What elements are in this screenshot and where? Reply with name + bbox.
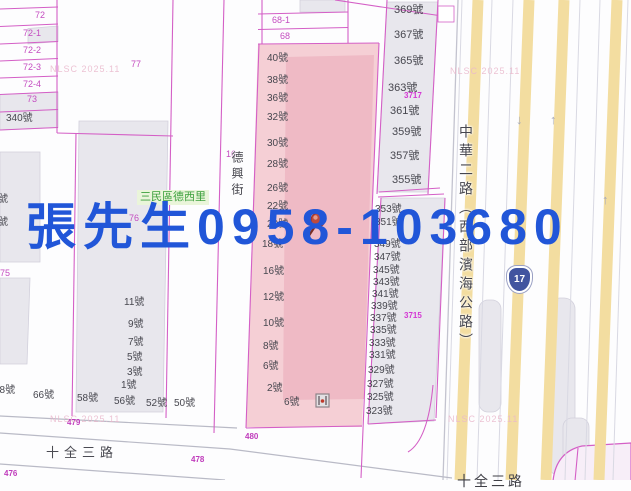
addresse-label: 339號 (371, 302, 398, 312)
addresse-label: 345號 (373, 266, 400, 276)
addresse-label: 58號 (77, 394, 98, 404)
addresse-label: 28號 (267, 160, 288, 170)
parcel-id-label: 72 (35, 11, 45, 20)
addresse-label: 32號 (267, 113, 288, 123)
addresse-label: 337號 (370, 314, 397, 324)
parcel-id-label: 72-2 (23, 46, 41, 55)
addresse-label: 30號 (267, 139, 288, 149)
map-symbol-icon (315, 393, 330, 408)
parcel-id-label: 73 (27, 95, 37, 104)
addresse-label: 355號 (392, 175, 421, 186)
addresse-label: 1號 (121, 381, 137, 391)
lot-id-label: 3715 (404, 312, 422, 320)
addresse-label: 341號 (372, 290, 399, 300)
nlsc-watermark: NLSC 2025.11 (448, 414, 518, 424)
addresse-label: 26號 (267, 184, 288, 194)
addresse-label: 329號 (368, 366, 395, 376)
addresse-label: 327號 (367, 380, 394, 390)
addresse-label: 325號 (367, 393, 394, 403)
street-name-dexing: 德興街 (231, 151, 243, 199)
parcel-id-label: 68-1 (272, 16, 290, 25)
addresse-label: 340號 (6, 114, 33, 124)
addresse-label: 357號 (390, 151, 419, 162)
nlsc-watermark: NLSC 2025.11 (50, 64, 120, 74)
addresse-label: 56號 (114, 397, 135, 407)
addresse-label: 323號 (366, 407, 393, 417)
addresse-label: 38號 (267, 76, 288, 86)
addresse-label: 2號 (267, 384, 283, 394)
street-name-shiquan-partial: 十全三路 (457, 471, 525, 491)
addresse-label: 331號 (369, 351, 396, 361)
addresse-label: 號 (0, 195, 8, 205)
addresse-label: 361號 (390, 106, 419, 117)
addresse-label: 36號 (267, 94, 288, 104)
parcel-id-label: 68 (280, 32, 290, 41)
addresse-label: 335號 (370, 326, 397, 336)
addresse-label: 10號 (263, 319, 284, 329)
addresse-label: 12號 (263, 293, 284, 303)
addresse-label: 50號 (174, 399, 195, 409)
addresse-label: 16號 (263, 267, 284, 277)
addresse-label: 6號 (284, 398, 300, 408)
addresse-label: 6號 (263, 362, 279, 372)
addresse-label: 367號 (394, 30, 423, 41)
parcel-id-label: 72-3 (23, 63, 41, 72)
addresse-label: 52號 (146, 399, 167, 409)
contact-watermark: 張先生0958-103680 (26, 201, 569, 254)
parcel-id-label: 72-1 (23, 29, 41, 38)
road-id-label: 476 (4, 470, 17, 478)
addresse-label: 343號 (373, 278, 400, 288)
addresse-label: 359號 (392, 127, 421, 138)
addresse-label: 68號 (0, 386, 15, 396)
addresse-label: 3號 (127, 368, 143, 378)
lot-id-label: 3717 (404, 92, 422, 100)
addresse-label: 11號 (124, 298, 144, 308)
addresse-label: 333號 (369, 339, 396, 349)
road-id-label: 478 (191, 456, 204, 464)
parcel-id-label: 72-4 (23, 80, 41, 89)
road-id-label: 480 (245, 433, 258, 441)
map-canvas[interactable]: { "watermark": { "phone": "張先生0958-10368… (0, 0, 631, 480)
addresse-label: 365號 (394, 56, 423, 67)
nlsc-watermark: NLSC 2025.11 (450, 66, 520, 76)
addresse-label: 5號 (127, 353, 143, 363)
addresse-label: 7號 (128, 338, 144, 348)
parcel-id-label: 75 (0, 269, 10, 278)
addresse-label: 40號 (267, 54, 288, 64)
street-name-shiquan-3rd-rd: 十全三路 (46, 442, 118, 461)
highway-17-number: 17 (514, 274, 525, 285)
addresse-label: 66號 (33, 391, 54, 401)
addresse-label: 369號 (394, 5, 423, 16)
addresse-label: 號 (0, 218, 8, 228)
addresse-label: 8號 (263, 342, 279, 352)
addresse-label: 9號 (128, 320, 144, 330)
parcel-id-label: 77 (131, 60, 141, 69)
nlsc-watermark: NLSC 2025.11 (50, 414, 120, 424)
